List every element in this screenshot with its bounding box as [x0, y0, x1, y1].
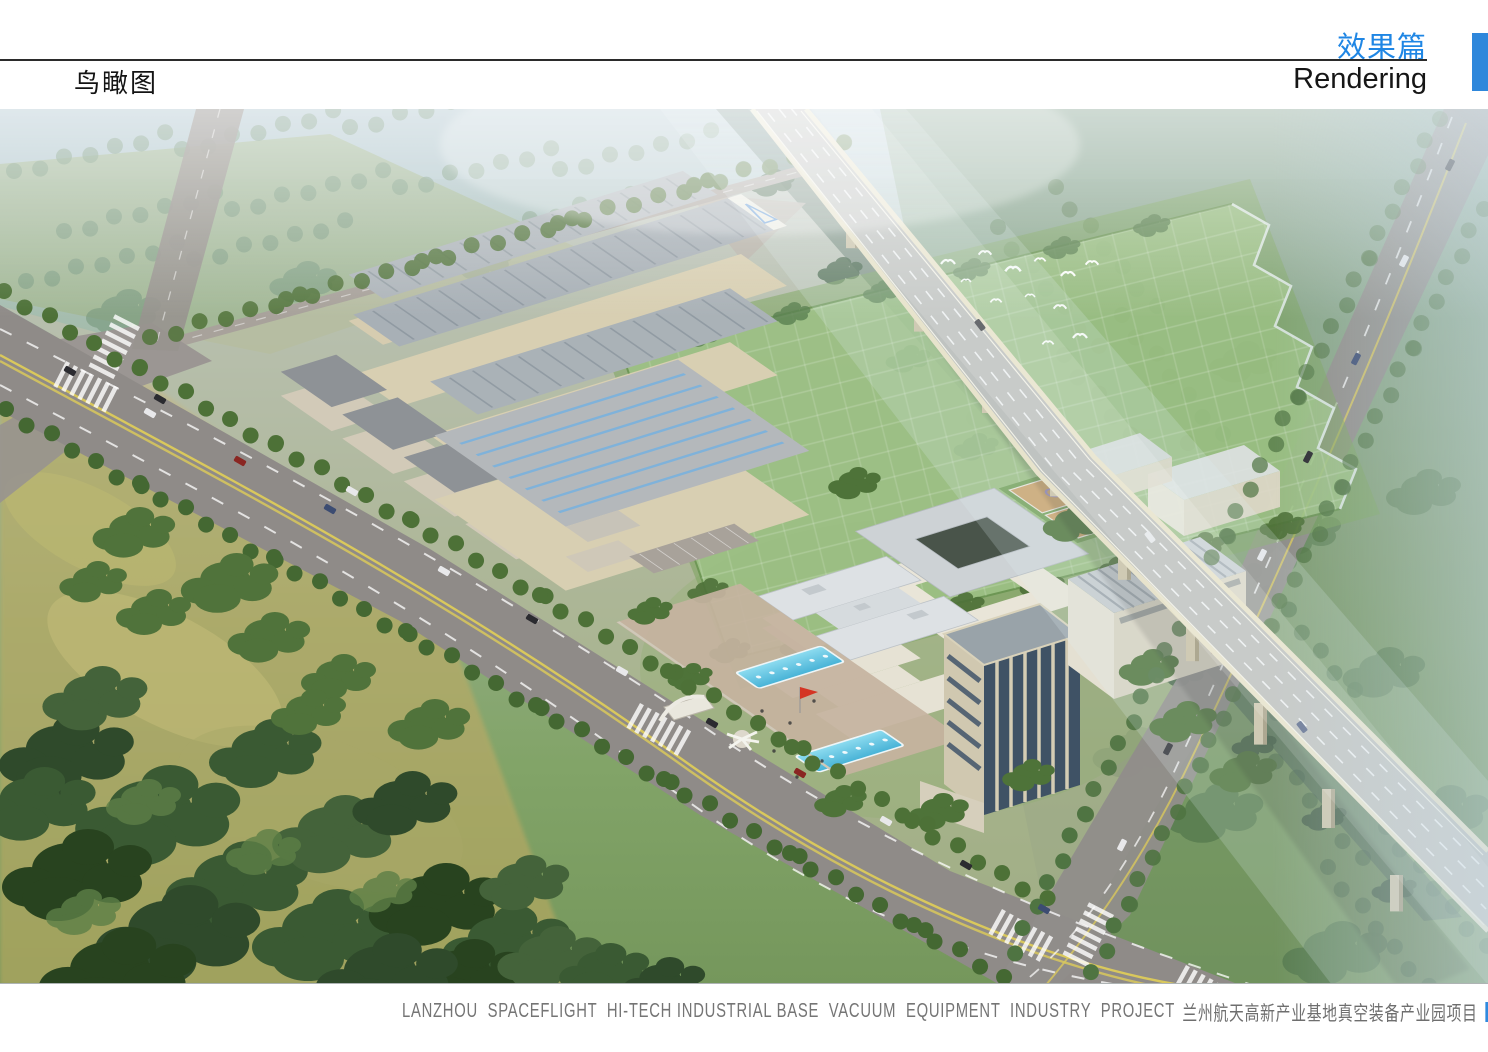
aerial-rendering-image: [0, 109, 1488, 983]
presentation-page: 效果篇 Rendering 鸟瞰图: [0, 0, 1488, 1052]
page-title: 鸟瞰图: [74, 63, 158, 100]
header-rule: [0, 59, 1427, 61]
project-caption: LANZHOU SPACEFLIGHT HI-TECH INDUSTRIAL B…: [402, 997, 1488, 1026]
caption-chinese: 兰州航天高新产业基地真空装备产业园项目: [1182, 997, 1477, 1026]
rendering-frame: [0, 109, 1488, 984]
section-title-en: Rendering: [1293, 63, 1427, 96]
caption-english: LANZHOU SPACEFLIGHT HI-TECH INDUSTRIAL B…: [402, 1000, 1175, 1023]
corner-accent-bar: [1472, 33, 1488, 91]
